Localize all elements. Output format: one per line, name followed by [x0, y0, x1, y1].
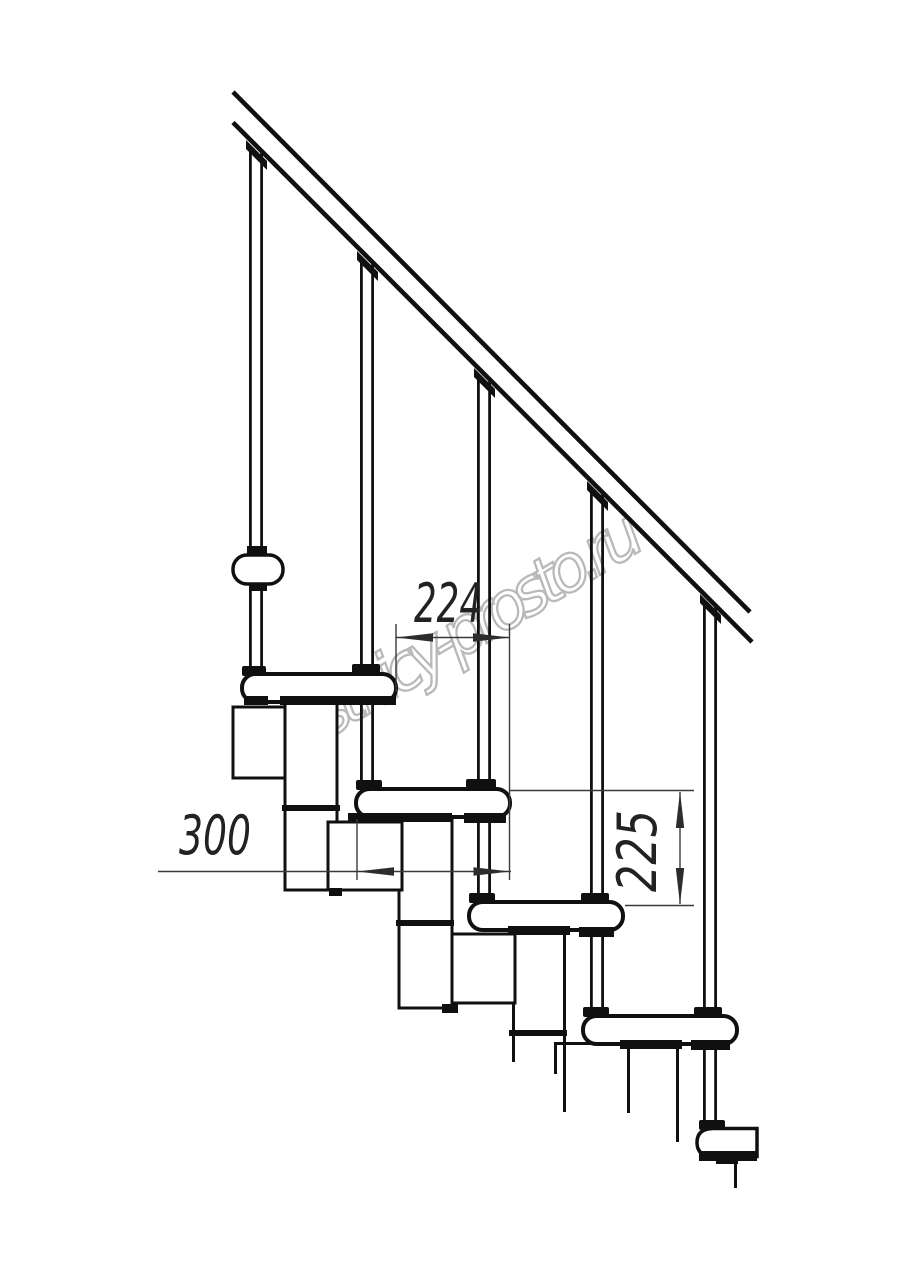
support-box-top: [233, 707, 288, 778]
dimension-value-300: 300: [179, 804, 251, 867]
support-box: [328, 822, 402, 890]
baluster-1: [250, 150, 261, 676]
tread-connector: [581, 893, 609, 903]
tread-plate: [464, 813, 506, 823]
tread-4: [583, 1016, 737, 1044]
dimension-value-225: 225: [606, 810, 669, 892]
tread-plate: [348, 813, 452, 822]
stair-technical-drawing: lestnicy-prosto.ru: [0, 0, 914, 1280]
arrowhead-right-icon: [474, 867, 511, 876]
tread-connector: [583, 1007, 609, 1017]
tread-connector: [469, 893, 495, 903]
support-module-chain: [233, 701, 738, 1188]
dimension-value-224: 224: [414, 572, 482, 635]
arrowhead-up-icon: [676, 792, 684, 829]
tread-plate: [508, 926, 570, 935]
tread-plate: [620, 1040, 682, 1049]
tread-connector: [356, 780, 382, 790]
tread-plate: [699, 1151, 757, 1161]
arrowhead-down-icon: [676, 868, 684, 905]
support-column: [399, 816, 452, 1008]
baluster-caps: [246, 140, 721, 624]
tread-connector: [352, 664, 380, 675]
tread-connector: [699, 1120, 725, 1130]
tread-connector: [242, 666, 266, 676]
tread-connector: [466, 779, 496, 791]
baluster-5: [704, 606, 715, 1130]
tread-2: [356, 789, 510, 817]
tread-plate: [579, 927, 614, 937]
handrail-lower-line: [233, 123, 752, 643]
landing-bracket: [233, 546, 283, 591]
bracket-tab-bottom: [249, 583, 267, 591]
module-tab: [442, 1004, 458, 1013]
tread-3: [469, 902, 623, 930]
module-tab: [329, 888, 342, 896]
tread-plate: [280, 696, 396, 705]
tread-plate: [244, 696, 268, 705]
bracket-pill: [233, 555, 283, 584]
handrail-upper-line: [233, 92, 750, 612]
drawing-svg: lestnicy-prosto.ru: [0, 0, 914, 1280]
handrail: [233, 92, 752, 642]
tread-connector: [694, 1007, 722, 1018]
tread-plate: [691, 1040, 730, 1050]
